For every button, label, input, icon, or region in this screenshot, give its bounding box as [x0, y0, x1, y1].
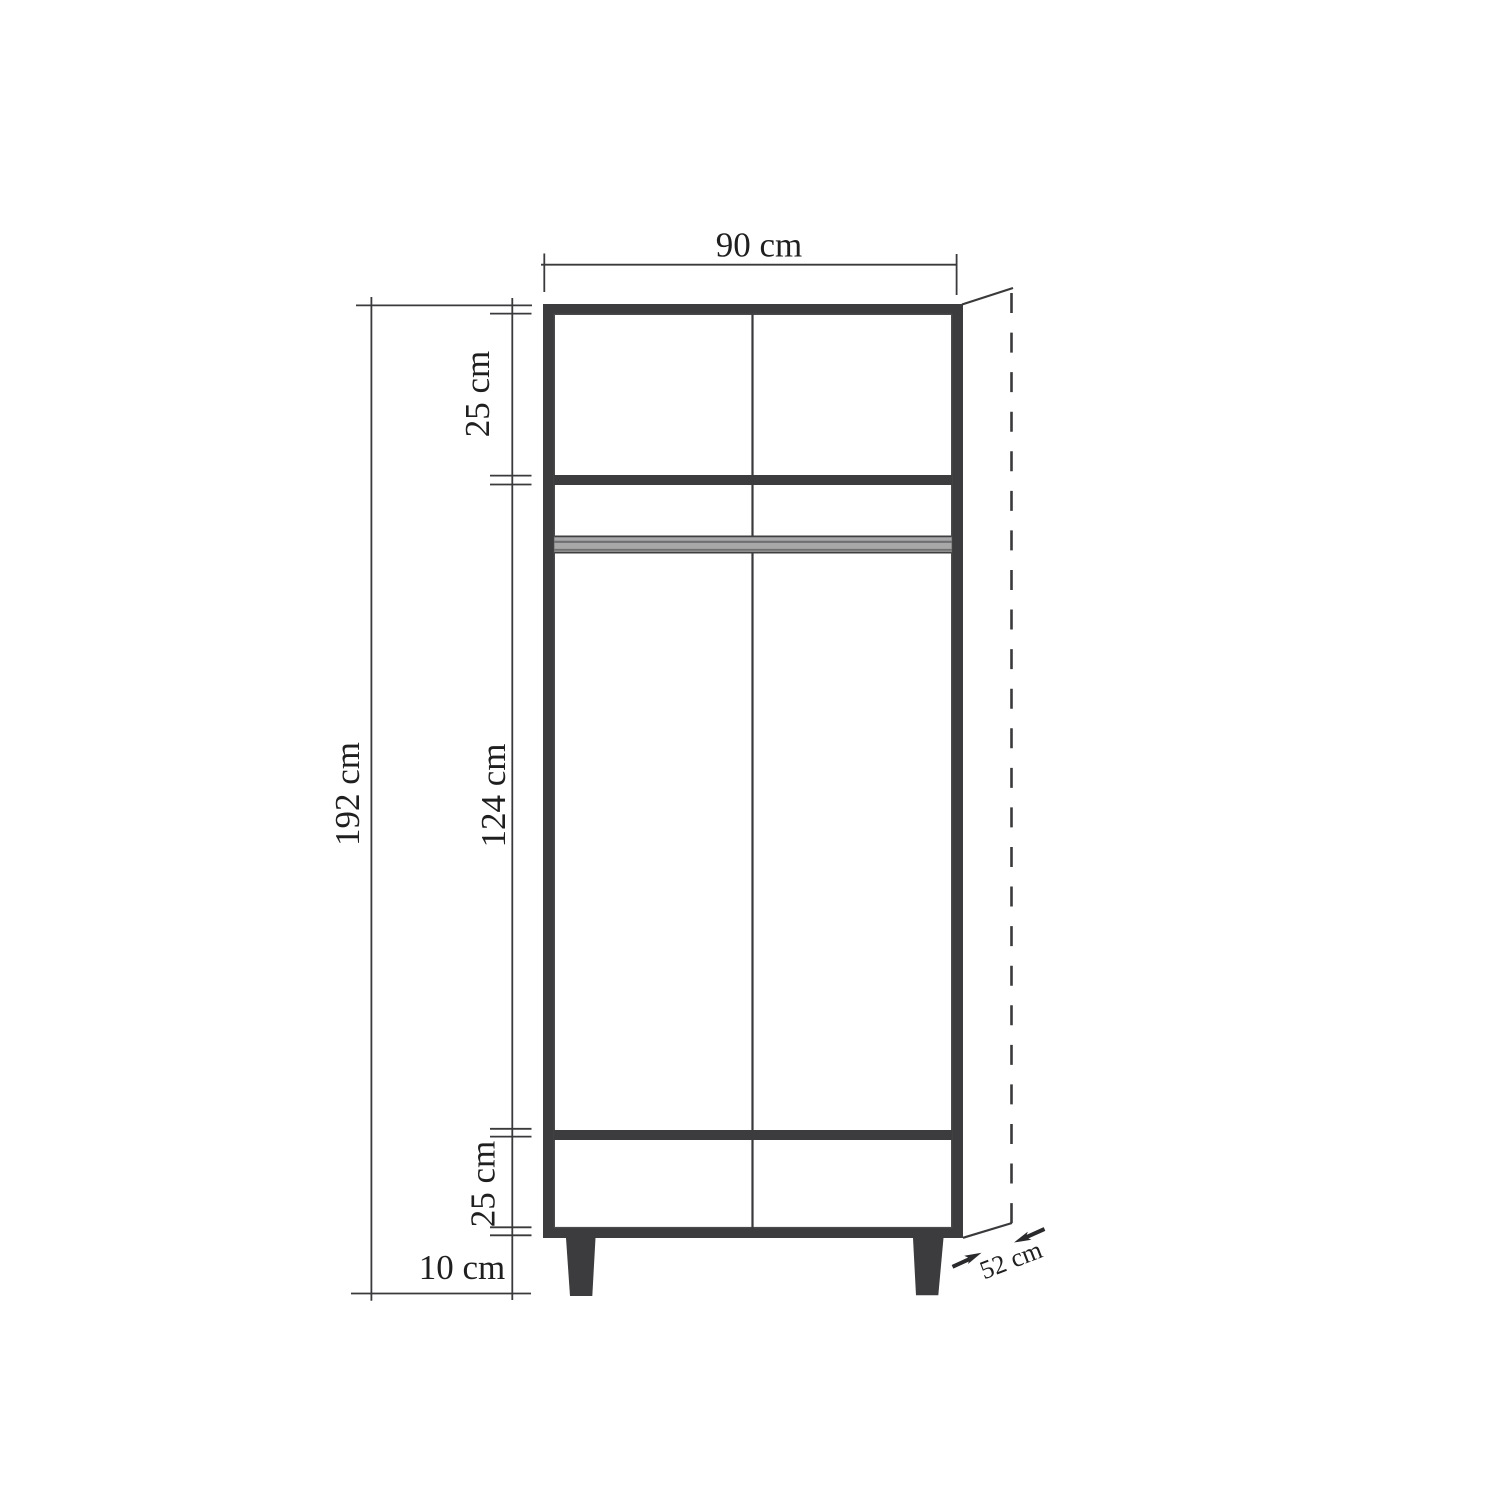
svg-text:10 cm: 10 cm [419, 1248, 506, 1287]
svg-text:90 cm: 90 cm [716, 226, 803, 265]
svg-text:25 cm: 25 cm [458, 351, 497, 438]
svg-text:124 cm: 124 cm [474, 743, 513, 847]
svg-text:25 cm: 25 cm [464, 1141, 503, 1228]
svg-text:192 cm: 192 cm [328, 742, 367, 846]
